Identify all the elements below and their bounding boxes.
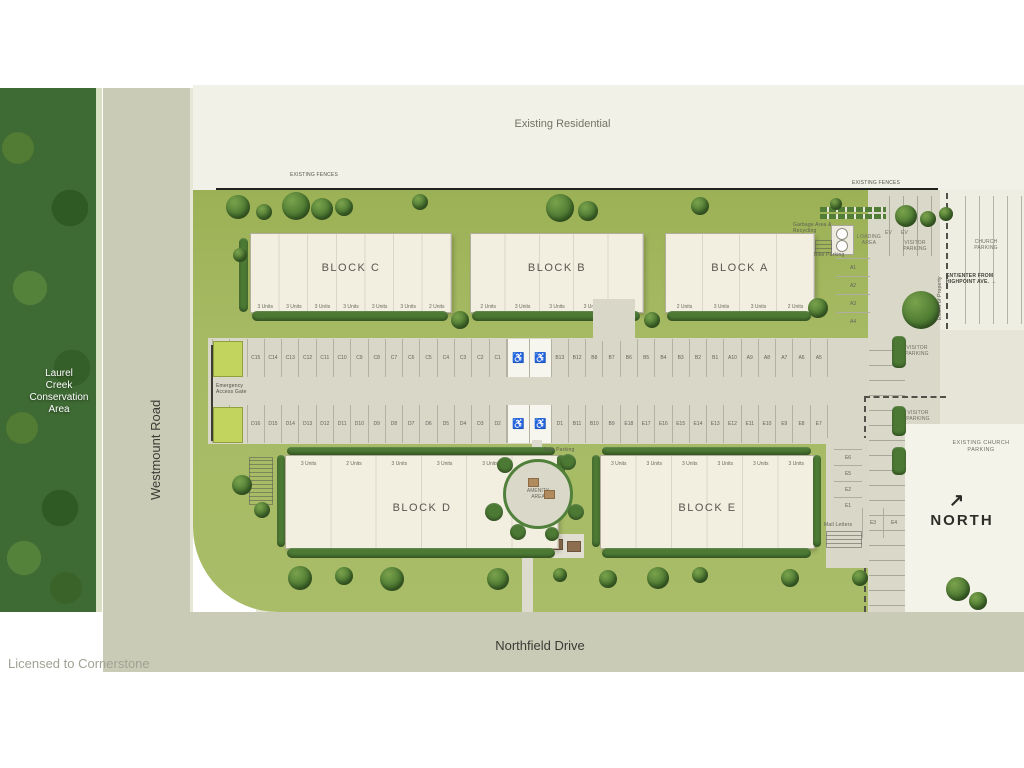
ev-stall-label: EV — [885, 230, 892, 236]
picnic-table — [528, 478, 539, 487]
shrub — [545, 527, 559, 541]
parking-stall: C12 — [298, 339, 315, 377]
tree — [895, 205, 917, 227]
property-line — [864, 396, 946, 398]
parking-stall: E10 — [758, 405, 775, 443]
amenity-area: AMENITY AREA — [503, 459, 573, 529]
hedge-strip — [820, 207, 886, 212]
unit-count-label: 3 Units — [672, 459, 708, 468]
tree — [335, 198, 353, 216]
parking-stall: C8 — [368, 339, 385, 377]
parking-stall: E4 — [883, 508, 904, 538]
parking-stall: E15 — [672, 405, 689, 443]
parking-stall: C10 — [333, 339, 350, 377]
tree — [282, 192, 310, 220]
parking-stall: A3 — [836, 294, 870, 312]
accessible-stall: ♿ — [507, 339, 529, 377]
gate-post-line — [211, 345, 213, 441]
unit-count-label: 3 Units — [377, 459, 422, 468]
parking-stall: A10 — [723, 339, 740, 377]
unit-count-label: 3 Units — [743, 459, 779, 468]
bike-rack-area — [249, 457, 273, 505]
shrub — [485, 503, 503, 521]
watermark: Licensed to Cornerstone — [8, 656, 150, 672]
garbage-label: Garbage Area & Recycling — [793, 222, 833, 234]
tree — [288, 566, 312, 590]
tree — [578, 201, 598, 221]
unit-count-label: 3 Units — [286, 459, 331, 468]
parking-stall: D4 — [454, 405, 471, 443]
existing-fences-label-left: EXISTING FENCES — [290, 172, 338, 178]
parking-stall: E6 — [834, 449, 862, 465]
block-a: BLOCK A 2 Units3 Units3 Units2 Units — [665, 233, 815, 313]
tree — [830, 198, 842, 210]
parking-stall: C9 — [350, 339, 367, 377]
driveway-stub — [593, 299, 635, 341]
tree — [335, 567, 353, 585]
tree — [852, 570, 868, 586]
unit-count-label: 3 Units — [365, 302, 394, 311]
unit-count-label: 3 Units — [601, 459, 637, 468]
tree — [902, 291, 940, 329]
parking-stall: B12 — [568, 339, 585, 377]
parking-stall: A9 — [741, 339, 758, 377]
mail-label: Mail Letters — [824, 522, 860, 528]
parking-stall: E11 — [741, 405, 758, 443]
conservation-label-line: Conservation — [0, 392, 118, 404]
hedge — [602, 447, 811, 455]
unit-count-label: 2 Units — [471, 302, 505, 311]
tree — [969, 592, 987, 610]
unit-count-label: 2 Units — [331, 459, 376, 468]
wheelchair-icon: ♿ — [512, 419, 524, 430]
existing-residential-label: Existing Residential — [470, 118, 655, 131]
shrub — [560, 454, 576, 470]
parking-stall: A6 — [792, 339, 809, 377]
conservation-area — [0, 88, 96, 612]
unit-count-label: 3 Units — [308, 302, 337, 311]
tree — [256, 204, 272, 220]
parking-stall: B9 — [602, 405, 619, 443]
east-stall-pair: E3E4 — [862, 508, 904, 538]
parking-stall: B13 — [551, 339, 568, 377]
ev-stall-label: EV — [901, 230, 908, 236]
emergency-gate-label: Emergency Access Gate — [216, 383, 250, 395]
parking-stall: E16 — [654, 405, 671, 443]
hedge — [592, 455, 600, 547]
tree — [553, 568, 567, 582]
tree — [692, 567, 708, 583]
hedge — [892, 406, 906, 436]
parking-stall: D10 — [350, 405, 367, 443]
tree — [546, 194, 574, 222]
block-e-label: BLOCK E — [601, 502, 814, 514]
unit-count-label: 2 Units — [422, 302, 451, 311]
parking-stall: E3 — [862, 508, 883, 538]
north-stalls: A1A2A3A4 — [836, 258, 870, 330]
parking-stall: D16 — [247, 405, 264, 443]
tree — [254, 502, 270, 518]
conservation-label: LaurelCreekConservationArea — [0, 368, 118, 416]
loading-area-label: LOADING AREA — [853, 234, 885, 246]
hedge — [287, 447, 555, 455]
westmount-road-label: Westmount Road — [148, 330, 164, 500]
tree — [939, 207, 953, 221]
stall-group-d: D18D17D16D15D14D13D12D11D10D9D8D7D6D5D4D… — [212, 405, 507, 443]
parking-stall: E17 — [637, 405, 654, 443]
parking-stall: A1 — [836, 258, 870, 276]
enter-highpoint-label: ENT/ENTER FROM HIGHPOINT AVE. → — [946, 273, 1016, 285]
parking-stall: B1 — [706, 339, 723, 377]
shrub — [510, 524, 526, 540]
wheelchair-icon: ♿ — [534, 419, 546, 430]
extent-label: Extent of Property — [937, 250, 943, 320]
tree — [691, 197, 709, 215]
parking-stall: B8 — [585, 339, 602, 377]
hedge — [813, 455, 821, 547]
unit-count-label: 3 Units — [779, 459, 815, 468]
hedge-strip — [820, 214, 886, 219]
block-a-units: 2 Units3 Units3 Units2 Units — [666, 302, 814, 311]
unit-count-label: 3 Units — [708, 459, 744, 468]
parking-stall: D12 — [316, 405, 333, 443]
block-c-label: BLOCK C — [251, 262, 451, 274]
hedge — [252, 311, 448, 321]
block-c-units: 3 Units3 Units3 Units3 Units3 Units3 Uni… — [251, 302, 451, 311]
parking-stall: D7 — [402, 405, 419, 443]
conservation-label-line: Laurel — [0, 368, 118, 380]
parking-stall: E13 — [706, 405, 723, 443]
block-a-label: BLOCK A — [666, 262, 814, 274]
north-label: NORTH — [928, 512, 996, 530]
parking-stall: C1 — [489, 339, 507, 377]
parking-stall: A2 — [836, 276, 870, 294]
block-e: 3 Units3 Units3 Units3 Units3 Units3 Uni… — [600, 455, 815, 549]
parking-stall: E18 — [620, 405, 637, 443]
parking-stall: D14 — [281, 405, 298, 443]
unit-count-label: 3 Units — [740, 302, 777, 311]
accessible-stall: ♿ — [507, 405, 529, 443]
parking-stall: B3 — [672, 339, 689, 377]
northfield-drive-label: Northfield Drive — [440, 638, 640, 654]
north-arrow-icon: ↗ — [949, 490, 964, 512]
site-plan: LaurelCreekConservationArea Existing Res… — [0, 0, 1024, 768]
parking-stall: A7 — [775, 339, 792, 377]
parking-stall: D5 — [437, 405, 454, 443]
hedge — [892, 447, 906, 475]
hedge — [667, 311, 811, 321]
tree — [647, 567, 669, 589]
unit-count-label: 3 Units — [251, 302, 280, 311]
stall-group-e: D1B11B10B9E18E17E16E15E14E13E12E11E10E9E… — [551, 405, 828, 443]
parking-stall: C6 — [402, 339, 419, 377]
hedge — [602, 548, 811, 558]
parking-stall: B7 — [602, 339, 619, 377]
church-stall-lines-top — [952, 196, 1024, 324]
mail-area — [826, 531, 862, 548]
unit-count-label: 3 Units — [394, 302, 423, 311]
parking-stall: C3 — [454, 339, 471, 377]
unit-count-label: 2 Units — [666, 302, 703, 311]
parking-stall: E9 — [775, 405, 792, 443]
parking-stall: D6 — [419, 405, 436, 443]
parking-stall: A5 — [810, 339, 828, 377]
bike-parking-label-amenity: Bike Parking — [544, 447, 580, 453]
parking-stall: E14 — [689, 405, 706, 443]
bench — [567, 541, 581, 552]
tree — [412, 194, 428, 210]
unit-count-label: 3 Units — [540, 302, 574, 311]
east-stalls: E6E5E2E1 — [834, 449, 862, 513]
parking-stall: A4 — [836, 312, 870, 330]
parking-row-bottom: D18D17D16D15D14D13D12D11D10D9D8D7D6D5D4D… — [212, 405, 828, 443]
unit-count-label: 3 Units — [637, 459, 673, 468]
parking-stall: E5 — [834, 465, 862, 481]
stall-group-ba: B13B12B8B7B6B5B4B3B2B1A10A9A8A7A6A5 — [551, 339, 828, 377]
garbage-bin-icon — [836, 240, 848, 252]
parking-stall: D15 — [264, 405, 281, 443]
conservation-label-line: Creek — [0, 380, 118, 392]
parking-stall: B10 — [585, 405, 602, 443]
hedge — [287, 548, 555, 558]
parking-stall: B6 — [620, 339, 637, 377]
tree — [226, 195, 250, 219]
tree — [644, 312, 660, 328]
block-b-label: BLOCK B — [471, 262, 643, 274]
existing-fences-label-right: EXISTING FENCES — [852, 180, 900, 186]
tree — [781, 569, 799, 587]
parking-stall: B5 — [637, 339, 654, 377]
unit-count-label: 3 Units — [337, 302, 366, 311]
parking-stall: B2 — [689, 339, 706, 377]
tree — [233, 248, 247, 262]
unit-count-label: 3 Units — [703, 302, 740, 311]
westmount-curb — [96, 88, 102, 612]
wheelchair-icon: ♿ — [512, 353, 524, 364]
parking-stall: C13 — [281, 339, 298, 377]
parking-stall: C15 — [247, 339, 264, 377]
stall-group-c: C17C16C15C14C13C12C11C10C9C8C7C6C5C4C3C2… — [212, 339, 507, 377]
tree — [311, 198, 333, 220]
parking-stall: D2 — [489, 405, 507, 443]
parking-stall: E1 — [834, 497, 862, 513]
parking-stall: E2 — [834, 481, 862, 497]
parking-stall: D3 — [471, 405, 488, 443]
accessible-stall: ♿ — [529, 339, 551, 377]
tree — [599, 570, 617, 588]
block-c: BLOCK C 3 Units3 Units3 Units3 Units3 Un… — [250, 233, 452, 313]
garbage-bin-icon — [836, 228, 848, 240]
parking-stall: C4 — [437, 339, 454, 377]
parking-stall: C14 — [264, 339, 281, 377]
block-e-units: 3 Units3 Units3 Units3 Units3 Units3 Uni… — [601, 459, 814, 468]
parking-stall: D13 — [298, 405, 315, 443]
parking-stall: D8 — [385, 405, 402, 443]
emergency-gate-north — [213, 341, 243, 377]
existing-church-parking-label: EXISTING CHURCH PARKING — [938, 440, 1024, 453]
parking-stall: D1 — [551, 405, 568, 443]
parking-stall: D9 — [368, 405, 385, 443]
church-parking-label: CHURCH PARKING — [963, 239, 1009, 251]
picnic-table — [544, 490, 555, 499]
visitor-parking-label-top: VISITOR PARKING — [895, 240, 935, 252]
accessible-stall: ♿ — [529, 405, 551, 443]
parking-stall: B4 — [654, 339, 671, 377]
parking-stall: E8 — [792, 405, 809, 443]
emergency-gate-south — [213, 407, 243, 443]
parking-stall: A8 — [758, 339, 775, 377]
unit-count-label: 3 Units — [280, 302, 309, 311]
hedge — [277, 455, 285, 547]
parking-stall: C11 — [316, 339, 333, 377]
tree — [451, 311, 469, 329]
tree — [920, 211, 936, 227]
wheelchair-icon: ♿ — [534, 353, 546, 364]
shrub — [497, 457, 513, 473]
conservation-label-line: Area — [0, 404, 118, 416]
parking-stall: E12 — [723, 405, 740, 443]
parking-row-top: C17C16C15C14C13C12C11C10C9C8C7C6C5C4C3C2… — [212, 339, 828, 377]
tree — [808, 298, 828, 318]
tree — [380, 567, 404, 591]
tree — [232, 475, 252, 495]
parking-stall: C2 — [471, 339, 488, 377]
parking-stall: B11 — [568, 405, 585, 443]
fence-line — [216, 188, 938, 190]
parking-stall: C7 — [385, 339, 402, 377]
shrub — [568, 504, 584, 520]
unit-count-label: 3 Units — [505, 302, 539, 311]
unit-count-label: 3 Units — [422, 459, 467, 468]
tree — [487, 568, 509, 590]
tree — [946, 577, 970, 601]
parking-stall: D11 — [333, 405, 350, 443]
hedge — [892, 336, 906, 368]
parking-stall: C5 — [419, 339, 436, 377]
